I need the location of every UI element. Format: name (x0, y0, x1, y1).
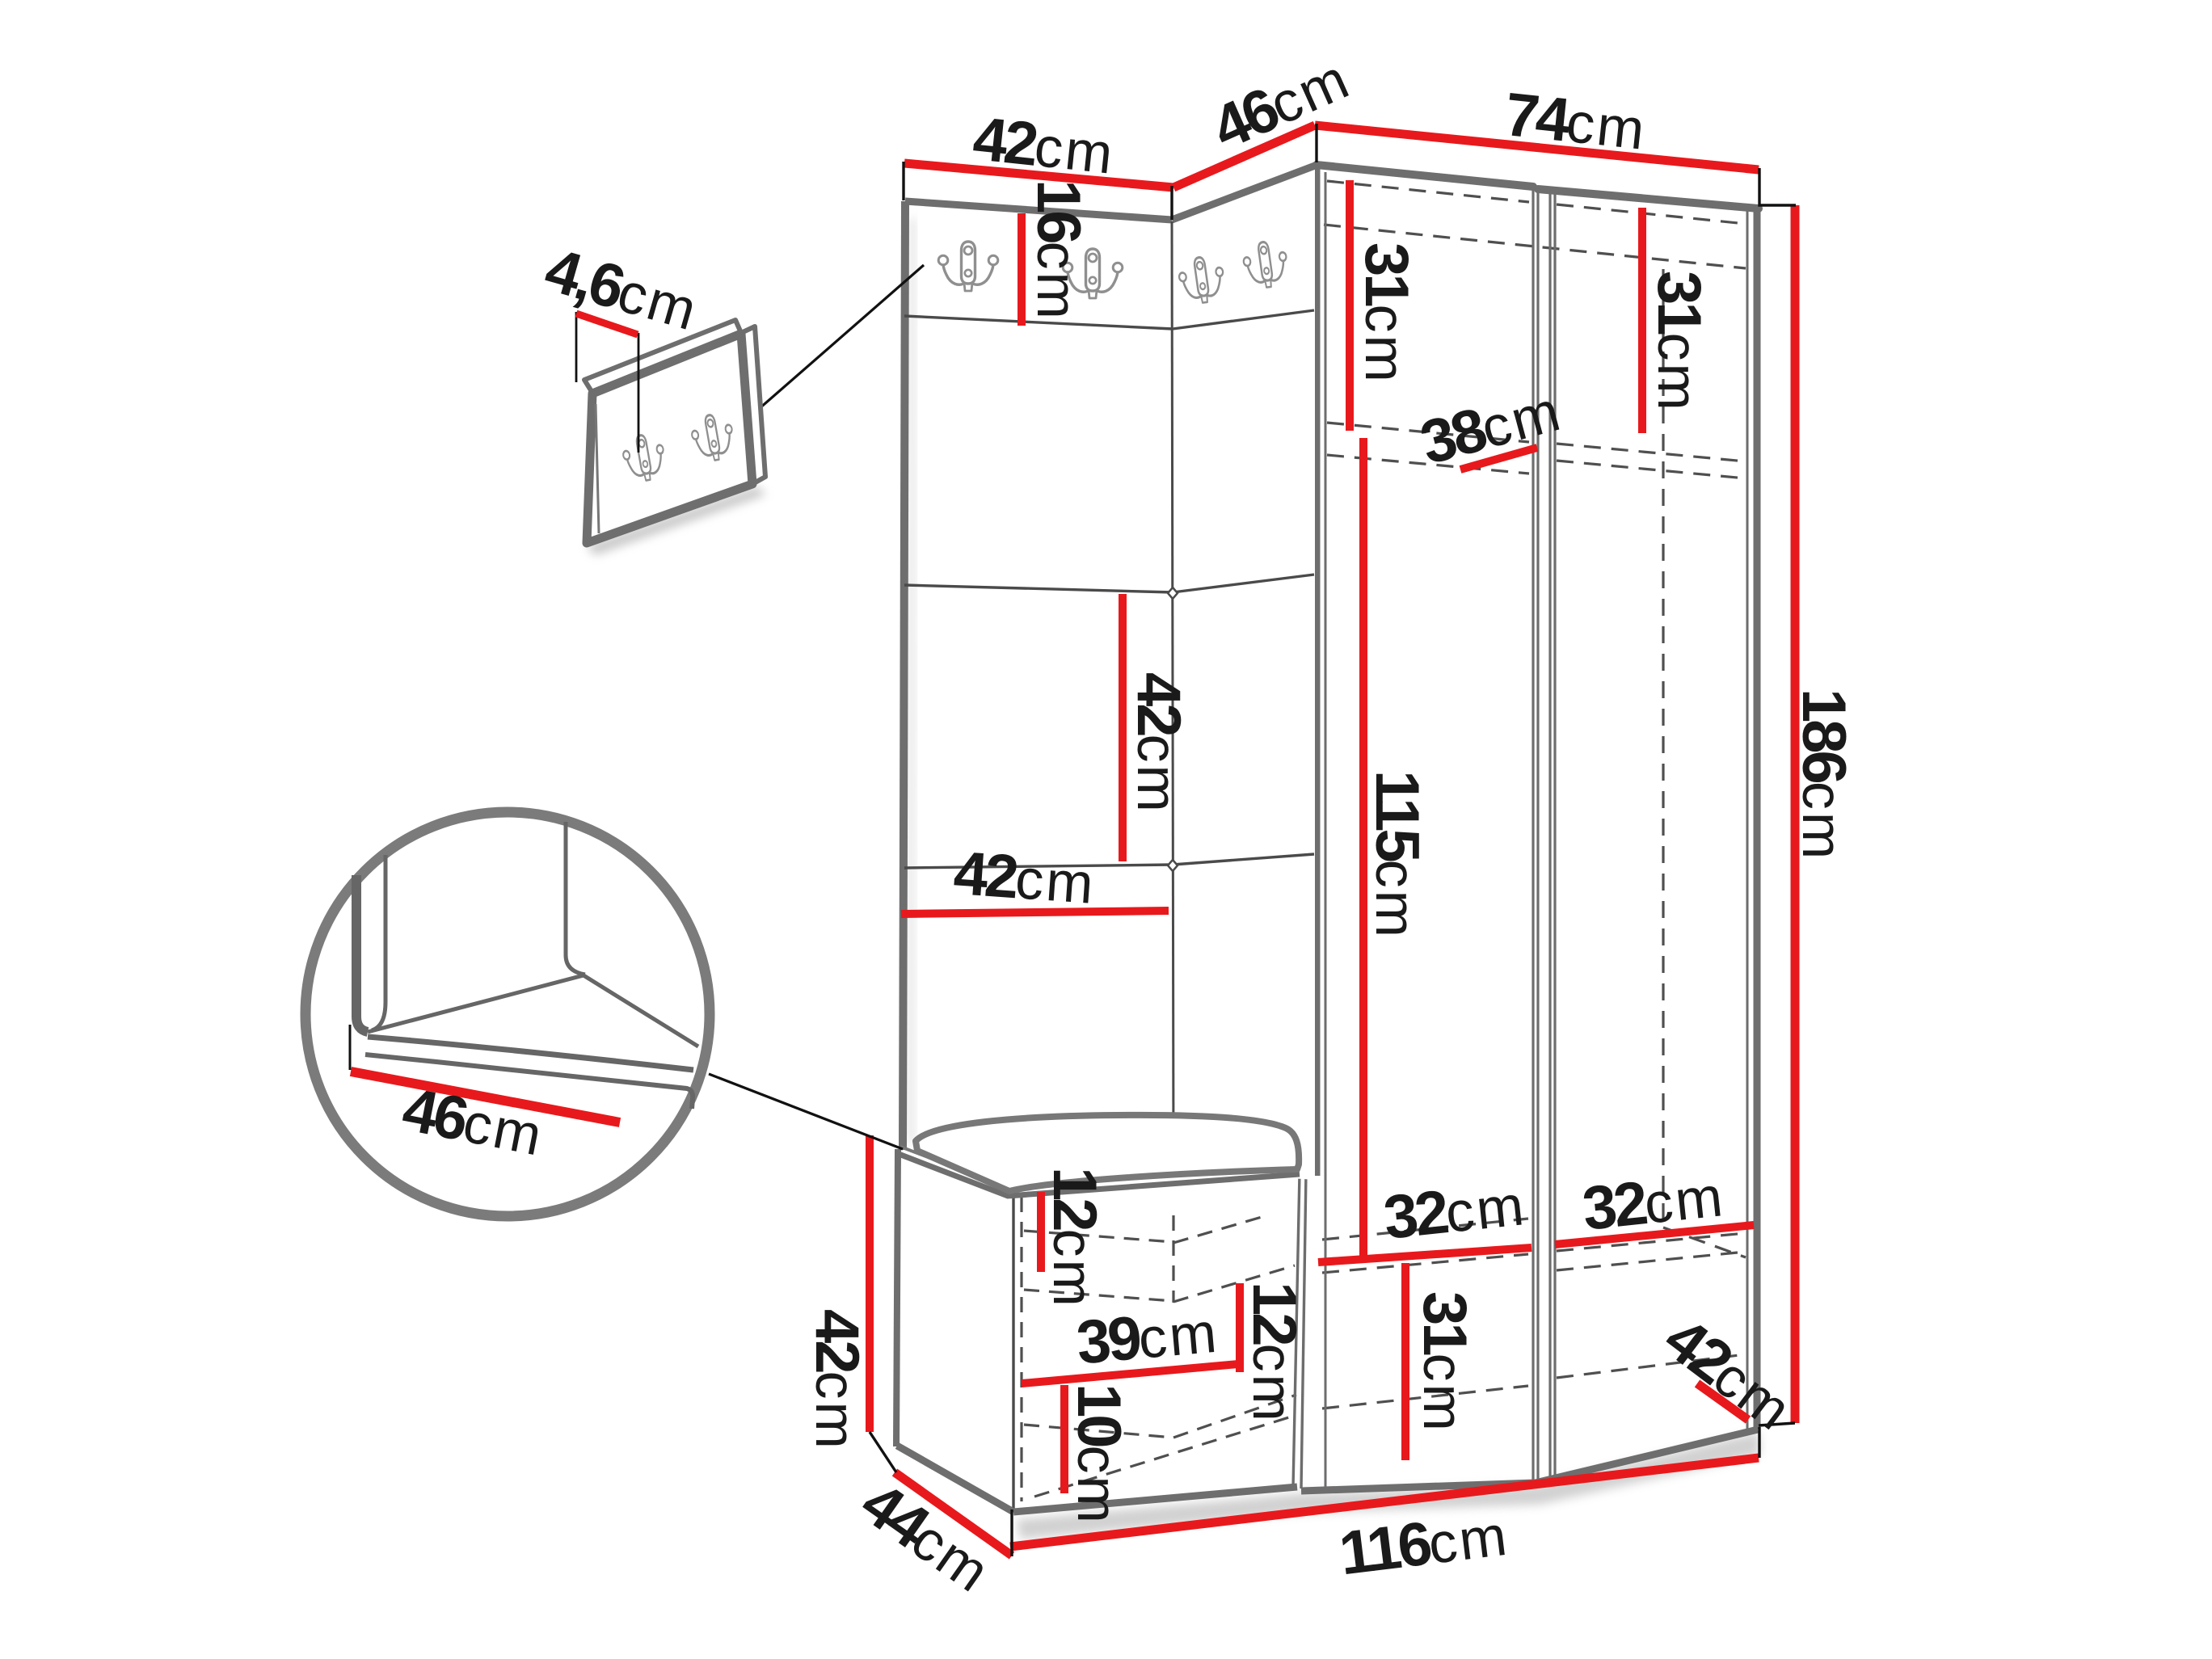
svg-text:12cm: 12cm (1240, 1282, 1308, 1424)
svg-text:39cm: 39cm (1074, 1296, 1222, 1377)
svg-text:31cm: 31cm (1410, 1291, 1479, 1434)
svg-text:42cm: 42cm (951, 839, 1098, 917)
svg-text:42cm: 42cm (1124, 672, 1193, 815)
svg-text:12cm: 12cm (1040, 1167, 1109, 1309)
svg-text:10cm: 10cm (1064, 1383, 1133, 1526)
svg-text:31cm: 31cm (1352, 242, 1421, 385)
svg-text:115cm: 115cm (1363, 770, 1431, 940)
svg-text:31cm: 31cm (1645, 271, 1713, 413)
svg-text:16cm: 16cm (1024, 179, 1093, 322)
svg-text:42cm: 42cm (803, 1309, 871, 1451)
svg-text:186cm: 186cm (1789, 688, 1858, 861)
